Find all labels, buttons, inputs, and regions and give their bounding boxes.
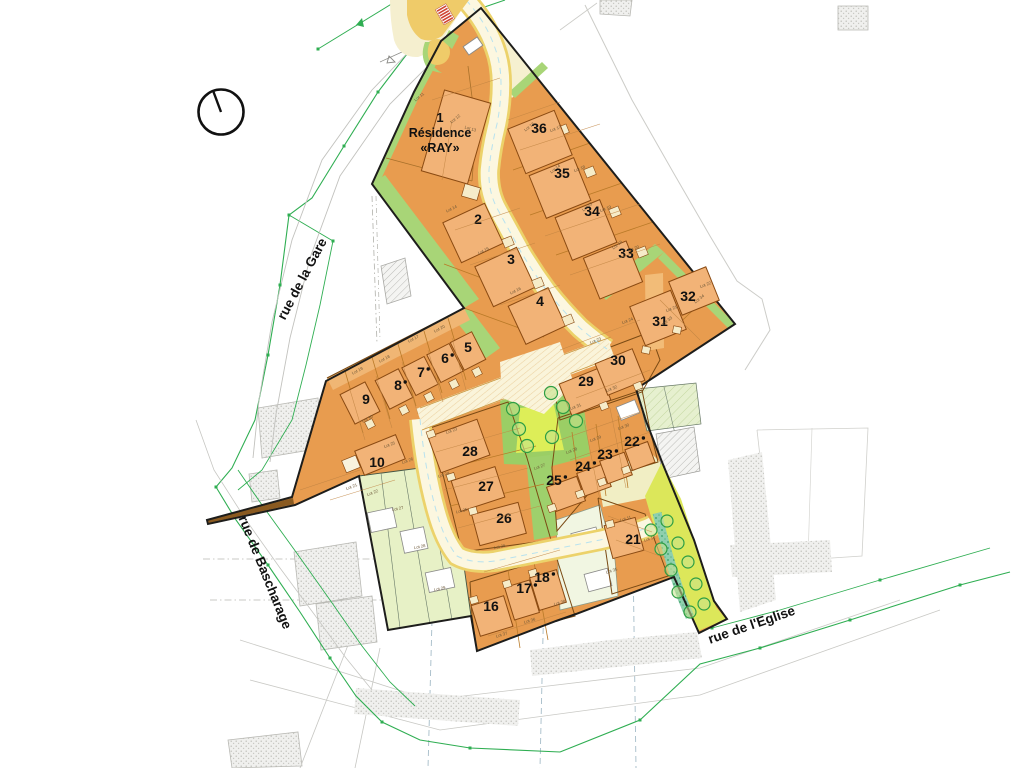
svg-text:25: 25 [546,472,562,488]
svg-text:Résidence: Résidence [409,126,472,140]
svg-text:30: 30 [610,352,626,368]
svg-text:24: 24 [575,458,591,474]
svg-text:7: 7 [417,364,425,380]
svg-text:22: 22 [624,433,640,449]
svg-text:36: 36 [531,120,547,136]
svg-text:9: 9 [362,391,370,407]
svg-text:4: 4 [536,293,544,309]
svg-text:«RAY»: «RAY» [420,141,459,155]
svg-text:2: 2 [474,211,482,227]
svg-text:28: 28 [462,443,478,459]
svg-text:1: 1 [436,110,443,125]
svg-text:18: 18 [534,569,550,585]
svg-text:29: 29 [578,373,594,389]
svg-text:21: 21 [625,531,641,547]
svg-text:8: 8 [394,377,402,393]
svg-text:26: 26 [496,510,512,526]
svg-text:23: 23 [597,446,613,462]
svg-text:16: 16 [483,598,499,614]
svg-text:17: 17 [516,580,532,596]
svg-text:6: 6 [441,350,449,366]
svg-text:3: 3 [507,251,515,267]
svg-text:10: 10 [369,454,385,470]
svg-text:5: 5 [464,339,472,355]
